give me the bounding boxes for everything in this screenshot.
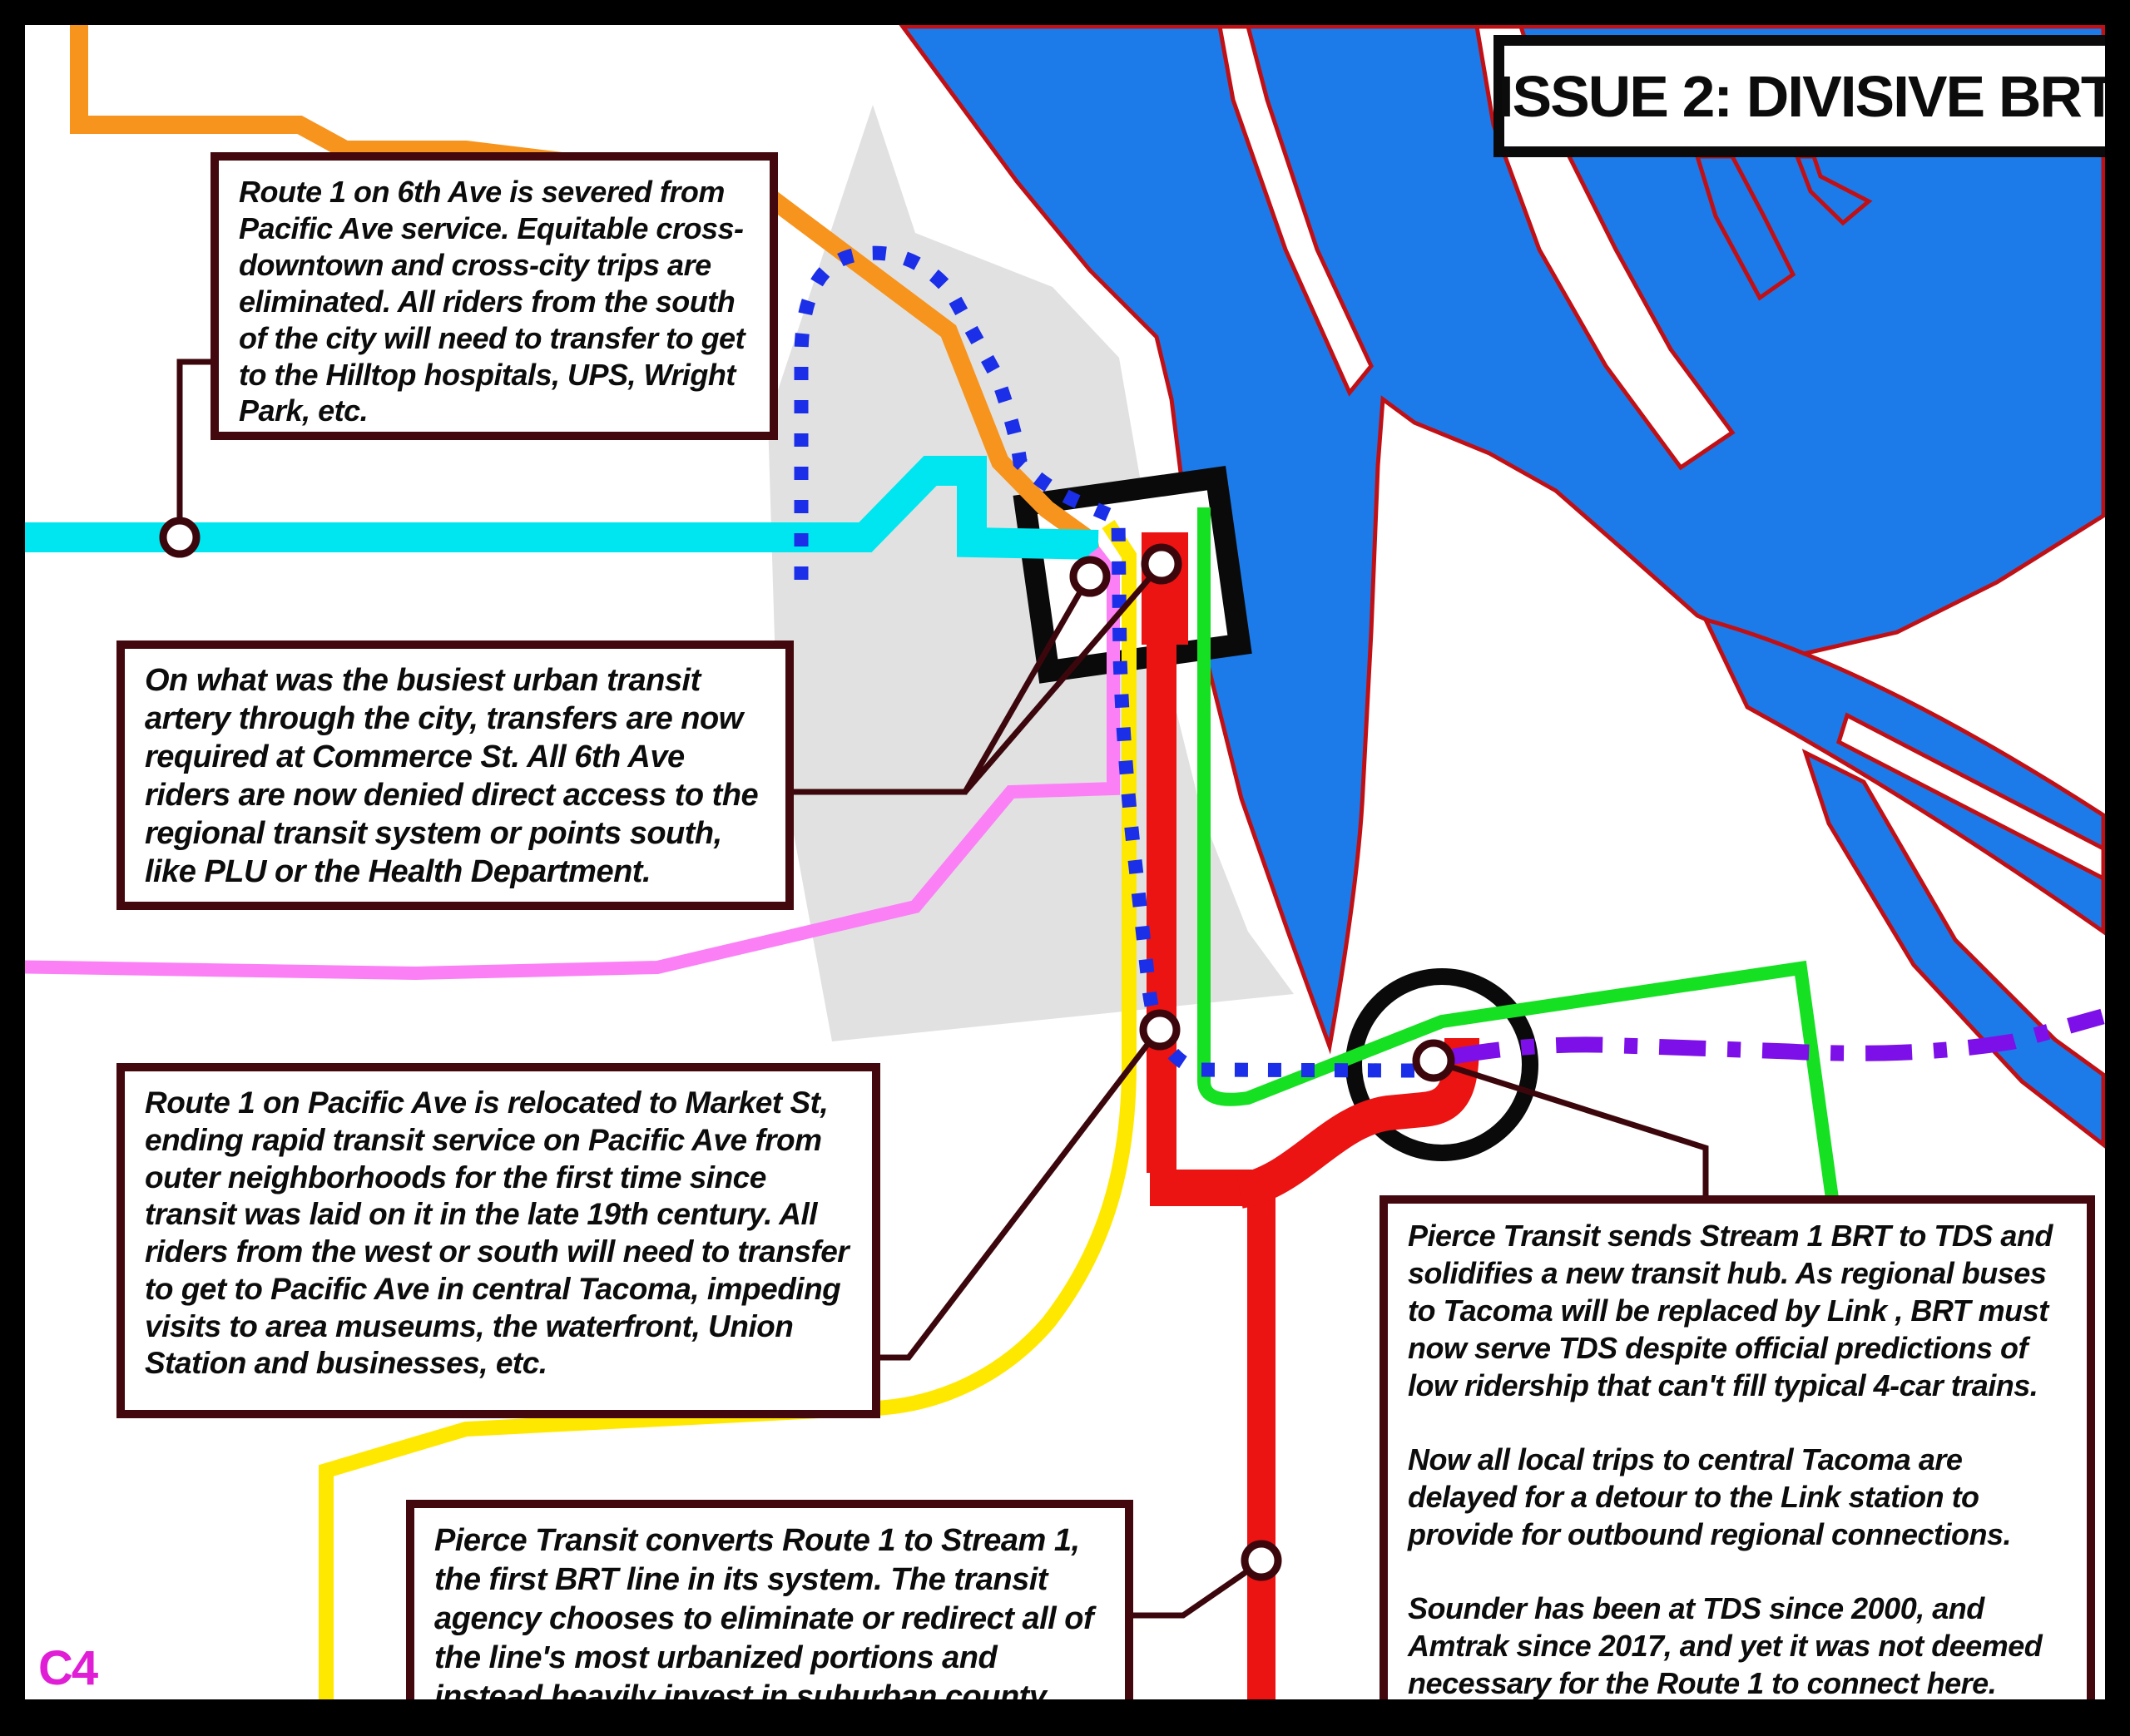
- callout-commerce-transfers: On what was the busiest urban transit ar…: [116, 640, 794, 910]
- map-page: Route 1 on 6th Ave is severed from Pacif…: [0, 0, 2130, 1736]
- station-marker-commerce-east: [1145, 547, 1178, 581]
- station-marker-pacific-south: [1245, 1544, 1278, 1577]
- callout-paragraph: Now all local trips to central Tacoma ar…: [1408, 1441, 2070, 1553]
- station-marker-commerce-west: [1073, 560, 1107, 593]
- station-marker-market-st: [1143, 1013, 1176, 1046]
- callout-text: Pierce Transit converts Route 1 to Strea…: [414, 1508, 1125, 1736]
- callout-6th-ave-severed: Route 1 on 6th Ave is severed from Pacif…: [211, 152, 778, 440]
- station-marker-tds: [1416, 1043, 1451, 1078]
- leader-callout4: [1132, 1564, 1258, 1615]
- station-marker-cyan-line: [163, 521, 196, 554]
- page-label: C4: [38, 1640, 97, 1696]
- callout-text: Route 1 on 6th Ave is severed from Pacif…: [219, 161, 770, 438]
- issue-title: ISSUE 2: DIVISIVE BRT: [1498, 63, 2116, 130]
- callout-tds-hub: Pierce Transit sends Stream 1 BRT to TDS…: [1380, 1195, 2095, 1714]
- callout-pacific-ave-relocated: Route 1 on Pacific Ave is relocated to M…: [116, 1063, 880, 1418]
- leader-callout5: [1436, 1062, 1706, 1198]
- callout-paragraph: Pierce Transit sends Stream 1 BRT to TDS…: [1408, 1217, 2070, 1404]
- issue-title-box: ISSUE 2: DIVISIVE BRT: [1493, 35, 2119, 157]
- callout-route1-converted: Pierce Transit converts Route 1 to Strea…: [406, 1500, 1133, 1714]
- callout-text: On what was the busiest urban transit ar…: [125, 649, 785, 900]
- callout-text: Route 1 on Pacific Ave is relocated to M…: [125, 1071, 872, 1391]
- callout-paragraph: Sounder has been at TDS since 2000, and …: [1408, 1590, 2070, 1702]
- leader-callout1: [180, 362, 213, 532]
